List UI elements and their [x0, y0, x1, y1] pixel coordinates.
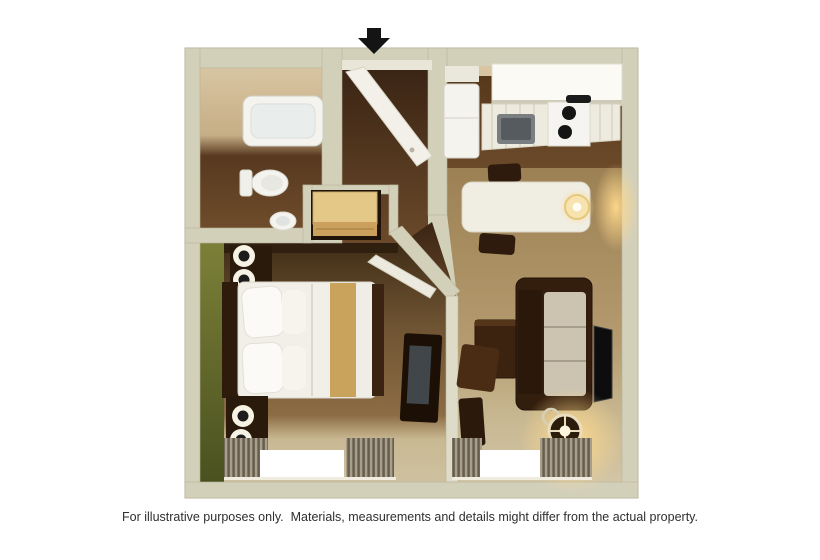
bedroom-window-sill [224, 477, 396, 480]
wall-lamp-1-center [239, 251, 250, 262]
tv-dresser [400, 333, 443, 423]
upper-cabinets [492, 64, 622, 104]
pillow-2 [242, 342, 285, 394]
living-window-light [480, 450, 544, 478]
stove-burner-1 [562, 106, 576, 120]
stove-grate [566, 95, 591, 103]
floor-lamp-bulb [560, 426, 571, 437]
living-curtain-left [452, 438, 482, 480]
sofa-backrest [518, 290, 542, 394]
sofa-cushions [544, 292, 586, 396]
toilet-seat [261, 175, 283, 191]
tv-dresser-screen [407, 345, 432, 404]
headboard [222, 282, 238, 398]
living-curtain-right [540, 438, 592, 480]
disclaimer-caption: For illustrative purposes only. Material… [0, 510, 820, 524]
bed-runner [330, 283, 356, 397]
dining-chair-south [478, 233, 515, 255]
wall-right [622, 48, 638, 498]
dining-chair-north [488, 163, 522, 183]
pillow-4 [282, 346, 306, 390]
closet-wall-east [389, 185, 398, 235]
stove-burner-2 [558, 125, 572, 139]
door-knob [410, 148, 415, 153]
kitchen-sink-basin [501, 118, 531, 140]
bed-foot-linen [356, 283, 372, 397]
dresser-top [313, 192, 377, 224]
wall-left [185, 48, 200, 498]
closet-wall-west [303, 185, 312, 243]
footboard [372, 284, 384, 396]
table-lamp-wall-glow [594, 163, 638, 251]
refrigerator [444, 84, 479, 158]
bedroom-window-light [260, 450, 344, 478]
bathtub-basin [251, 104, 315, 138]
table-lamp-top [573, 203, 582, 212]
toilet-tank [240, 170, 252, 196]
living-window-sill [452, 477, 592, 480]
armchair [456, 344, 500, 393]
wall-tv [594, 326, 612, 402]
closet [311, 190, 381, 240]
cabinet-over-fridge [445, 66, 479, 82]
entry-door-frame [342, 60, 432, 70]
floorplan-image [0, 0, 820, 560]
floorplan-screenshot: For illustrative purposes only. Material… [0, 0, 820, 560]
green-accent-wall [200, 243, 224, 482]
bathroom-sink-basin [276, 216, 290, 226]
pillow-3 [282, 290, 306, 334]
pillow-1 [241, 285, 285, 338]
wall-lamp-3-center [238, 411, 249, 422]
bedroom-curtain-right [346, 438, 394, 480]
coffee-table-edge [475, 320, 517, 326]
